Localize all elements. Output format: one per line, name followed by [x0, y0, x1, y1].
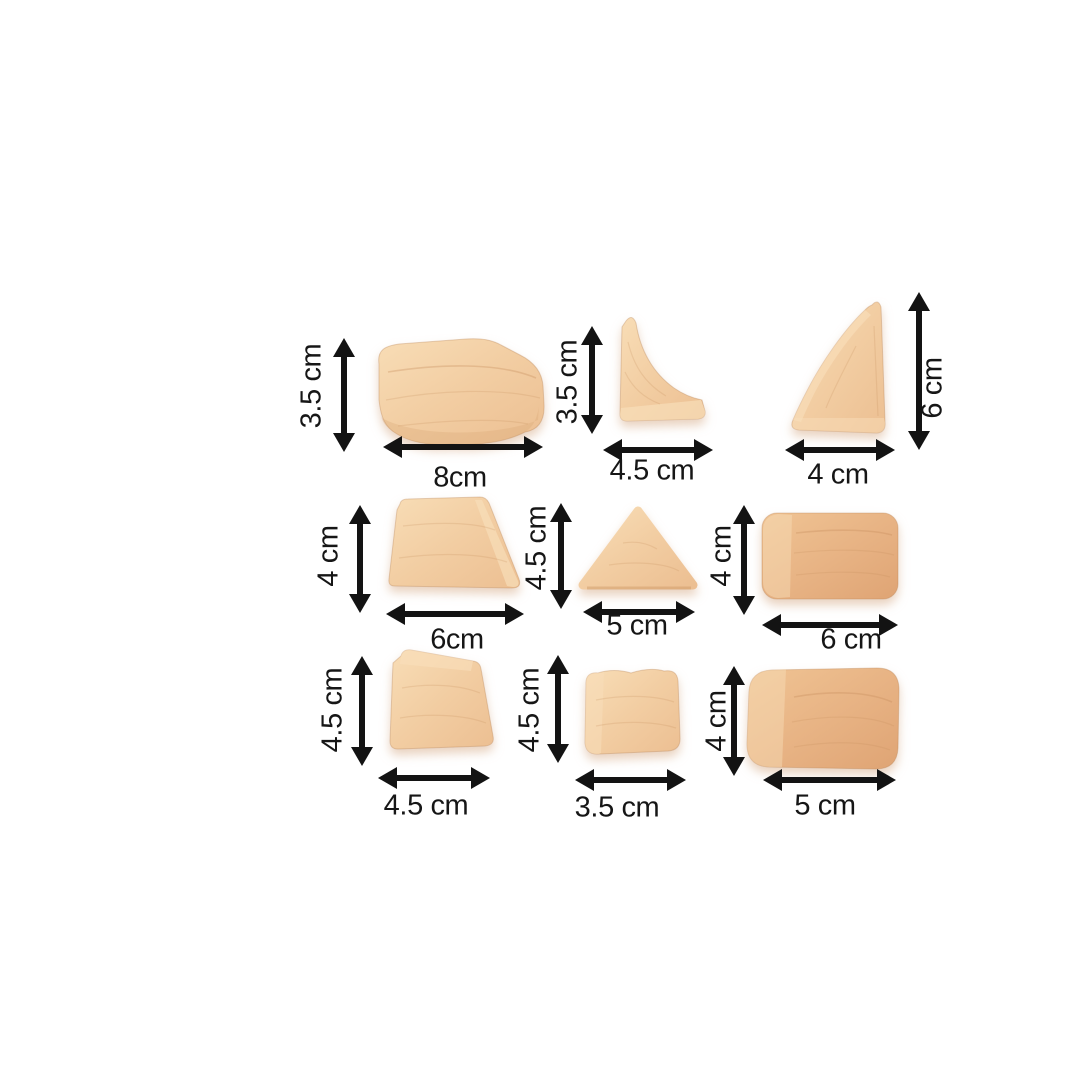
bevel-highlight [585, 672, 604, 754]
width-dimension-arrow [383, 435, 543, 459]
arrow-shaft [792, 447, 888, 453]
arrow-shaft [390, 444, 536, 450]
arrow-shaft [770, 777, 889, 783]
width-dimension-label: 8cm [433, 464, 487, 493]
width-dimension-arrow [763, 768, 896, 792]
width-dimension-arrow [378, 766, 490, 790]
small-cove-corner-block-photo [610, 312, 706, 434]
arrow-shaft [589, 333, 595, 427]
arrow-shaft [359, 663, 365, 759]
wedge-block-photo [380, 643, 502, 762]
height-dimension-label: 6 cm [919, 357, 948, 418]
height-dimension-arrow [350, 656, 374, 766]
height-dimension-label: 4.5 cm [523, 506, 552, 591]
arrow-shaft [385, 775, 483, 781]
width-dimension-label: 4 cm [807, 461, 868, 490]
arrow-shaft [558, 510, 564, 602]
height-dimension-label: 4 cm [703, 690, 732, 751]
bevel-highlight [747, 669, 786, 767]
rounded-rectangle-5cm-block-photo [744, 662, 902, 772]
arrow-shaft [582, 777, 679, 783]
arrow-shaft [357, 512, 363, 606]
height-dimension-label: 4.5 cm [516, 668, 545, 753]
width-dimension-arrow [386, 602, 524, 626]
width-dimension-label: 4.5 cm [384, 792, 469, 821]
height-dimension-label: 3.5 cm [554, 340, 583, 425]
height-dimension-label: 4 cm [315, 525, 344, 586]
cushion-block-photo [572, 660, 690, 760]
curved-bar-block-photo [368, 334, 550, 448]
width-dimension-label: 4.5 cm [610, 457, 695, 486]
arrow-shaft [341, 345, 347, 445]
bevel-highlight [763, 514, 792, 598]
rounded-rectangle-6cm-block-photo [760, 511, 900, 601]
width-dimension-arrow [575, 768, 686, 792]
height-dimension-arrow [332, 338, 356, 452]
product-dimensions-infographic: 3.5 cm 8cm 3.5 cm 4.5 cm 6 cm 4 cm 4 cm … [0, 0, 1080, 1080]
trapezoid-block-photo [383, 496, 525, 598]
arrow-shaft [393, 611, 517, 617]
arrow-shaft [610, 447, 706, 453]
height-dimension-label: 3.5 cm [298, 344, 327, 429]
height-dimension-arrow [546, 655, 570, 763]
width-dimension-label: 3.5 cm [575, 794, 660, 823]
arrow-shaft [741, 512, 747, 608]
large-cove-corner-block-photo [786, 296, 898, 446]
width-dimension-label: 5 cm [794, 792, 855, 821]
height-dimension-label: 4 cm [708, 525, 737, 586]
width-dimension-label: 6 cm [820, 626, 881, 655]
height-dimension-arrow [348, 505, 372, 613]
width-dimension-label: 5 cm [606, 612, 667, 641]
height-dimension-arrow [580, 326, 604, 434]
height-dimension-label: 4.5 cm [319, 668, 348, 753]
triangle-block-photo [575, 503, 701, 595]
height-dimension-arrow [549, 503, 573, 609]
arrow-shaft [555, 662, 561, 756]
